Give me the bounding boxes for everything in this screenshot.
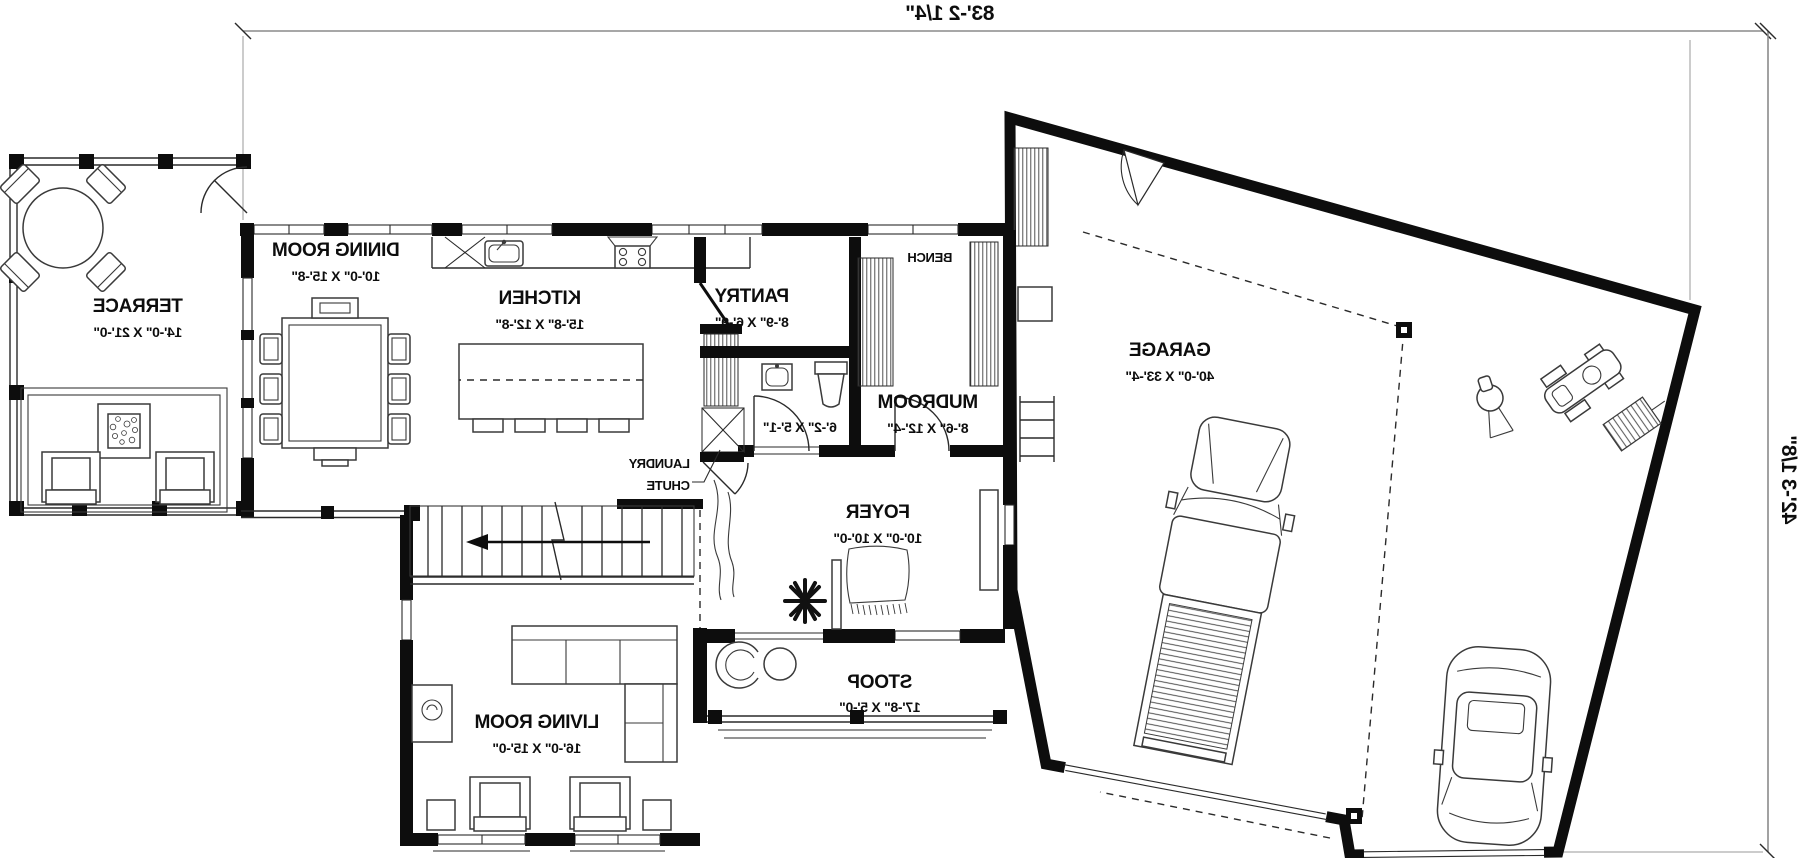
floor-plan-page: 83'-2 1/4" 42'-3 1/8"	[0, 0, 1800, 858]
stairs	[410, 499, 703, 628]
terrace-size: 14'-0" X 21'-0"	[94, 324, 183, 340]
garage-size: 40'-0" X 33'-4"	[1126, 368, 1215, 384]
side-table	[643, 800, 671, 830]
powder-sink	[762, 364, 792, 390]
terrace-label: TERRACE	[93, 296, 183, 317]
dining-table	[260, 298, 410, 466]
mudroom-size: 8'-6" X 12'-4"	[887, 420, 968, 436]
plant-icon	[785, 580, 825, 622]
stair-arrow-head	[466, 534, 488, 550]
stoop-chair	[716, 642, 758, 688]
bench-label: BENCH	[908, 250, 953, 265]
mudroom-label: MUDROOM	[878, 392, 978, 413]
terrace-door-swing	[201, 167, 247, 213]
car	[1428, 644, 1559, 848]
kitchen-sink	[485, 240, 523, 266]
terrace-armchair	[156, 452, 214, 504]
terrace-lounge	[21, 388, 227, 512]
pantry-size: 8'-9" X 6'-9"	[715, 314, 789, 330]
mudroom: BENCH MUDROOM 8'-6" X 12'-4"	[849, 242, 1005, 457]
pantry-hatched-wall	[704, 334, 738, 406]
stoop-label: STOOP	[847, 672, 912, 693]
kitchen-stove	[608, 237, 657, 268]
living-armchair	[470, 777, 530, 831]
foyer-size: 10'-0" X 10'-0"	[834, 530, 923, 546]
garage-post-marker	[1396, 322, 1412, 338]
garage-walls	[1010, 118, 1695, 855]
stoop-table	[764, 648, 796, 680]
dimension-width-label: 83'-2 1/4"	[905, 2, 994, 25]
dining-room: DINING ROOM 10'-0" X 15'-8"	[260, 240, 410, 466]
mirrored-plan: 83'-2 1/4" 42'-3 1/8"	[0, 2, 1800, 858]
powder-toilet	[815, 362, 847, 407]
side-table	[427, 800, 455, 830]
front-door-leaf	[832, 560, 841, 629]
powder-room: 6'-2" X 5'-1"	[700, 237, 861, 457]
closet-door-panel	[980, 490, 998, 590]
dining-size: 10'-0" X 15'-8"	[292, 268, 381, 284]
floor-plan-canvas: 83'-2 1/4" 42'-3 1/8"	[0, 0, 1800, 858]
garage: GARAGE 40'-0" X 33'-4"	[1010, 118, 1695, 857]
laundry-label-2: CHUTE	[646, 478, 690, 493]
dimension-height-label: 42'-3 1/8"	[1777, 435, 1800, 524]
stoop-size: 17'-8" X 5'-0"	[839, 699, 920, 715]
garage-label: GARAGE	[1129, 340, 1211, 361]
garage-entry-door	[1018, 287, 1052, 321]
mudroom-locker-hatch	[970, 242, 998, 386]
kitchen-size: 15'-8" X 12'-8"	[496, 316, 585, 332]
entry-rug	[847, 546, 909, 615]
corner-cabinet	[445, 237, 485, 268]
living-label: LIVING ROOM	[475, 712, 599, 733]
garage-door-car	[1364, 850, 1544, 858]
terrace: TERRACE 14'-0" X 21'-0"	[0, 154, 251, 516]
living-room: LIVING ROOM 16'-0" X 15'-0"	[412, 626, 677, 831]
laundry-chute: LAUNDRY CHUTE	[628, 408, 748, 494]
living-armchair	[570, 777, 630, 831]
terrace-table	[0, 163, 127, 292]
pantry-label: PANTRY	[714, 286, 789, 307]
mudroom-locker-hatch	[858, 258, 893, 386]
powder-size: 6'-2" X 5'-1"	[763, 419, 837, 435]
stoop: STOOP 17'-8" X 5'-0"	[707, 642, 1007, 738]
drapery	[714, 480, 734, 600]
foyer: FOYER 10'-0" X 10'-0"	[706, 480, 1005, 643]
kitchen-label: KITCHEN	[499, 288, 581, 309]
foyer-label: FOYER	[845, 502, 910, 523]
garage-hatched-wall	[1014, 148, 1048, 246]
kitchen-island	[459, 344, 643, 432]
dining-label: DINING ROOM	[272, 240, 400, 261]
laundry-label-1: LAUNDRY	[628, 456, 690, 471]
garage-post-marker	[1346, 808, 1362, 824]
terrace-armchair	[42, 452, 100, 504]
wood-stove	[412, 685, 452, 742]
living-size: 16'-0" X 15'-0"	[493, 740, 582, 756]
